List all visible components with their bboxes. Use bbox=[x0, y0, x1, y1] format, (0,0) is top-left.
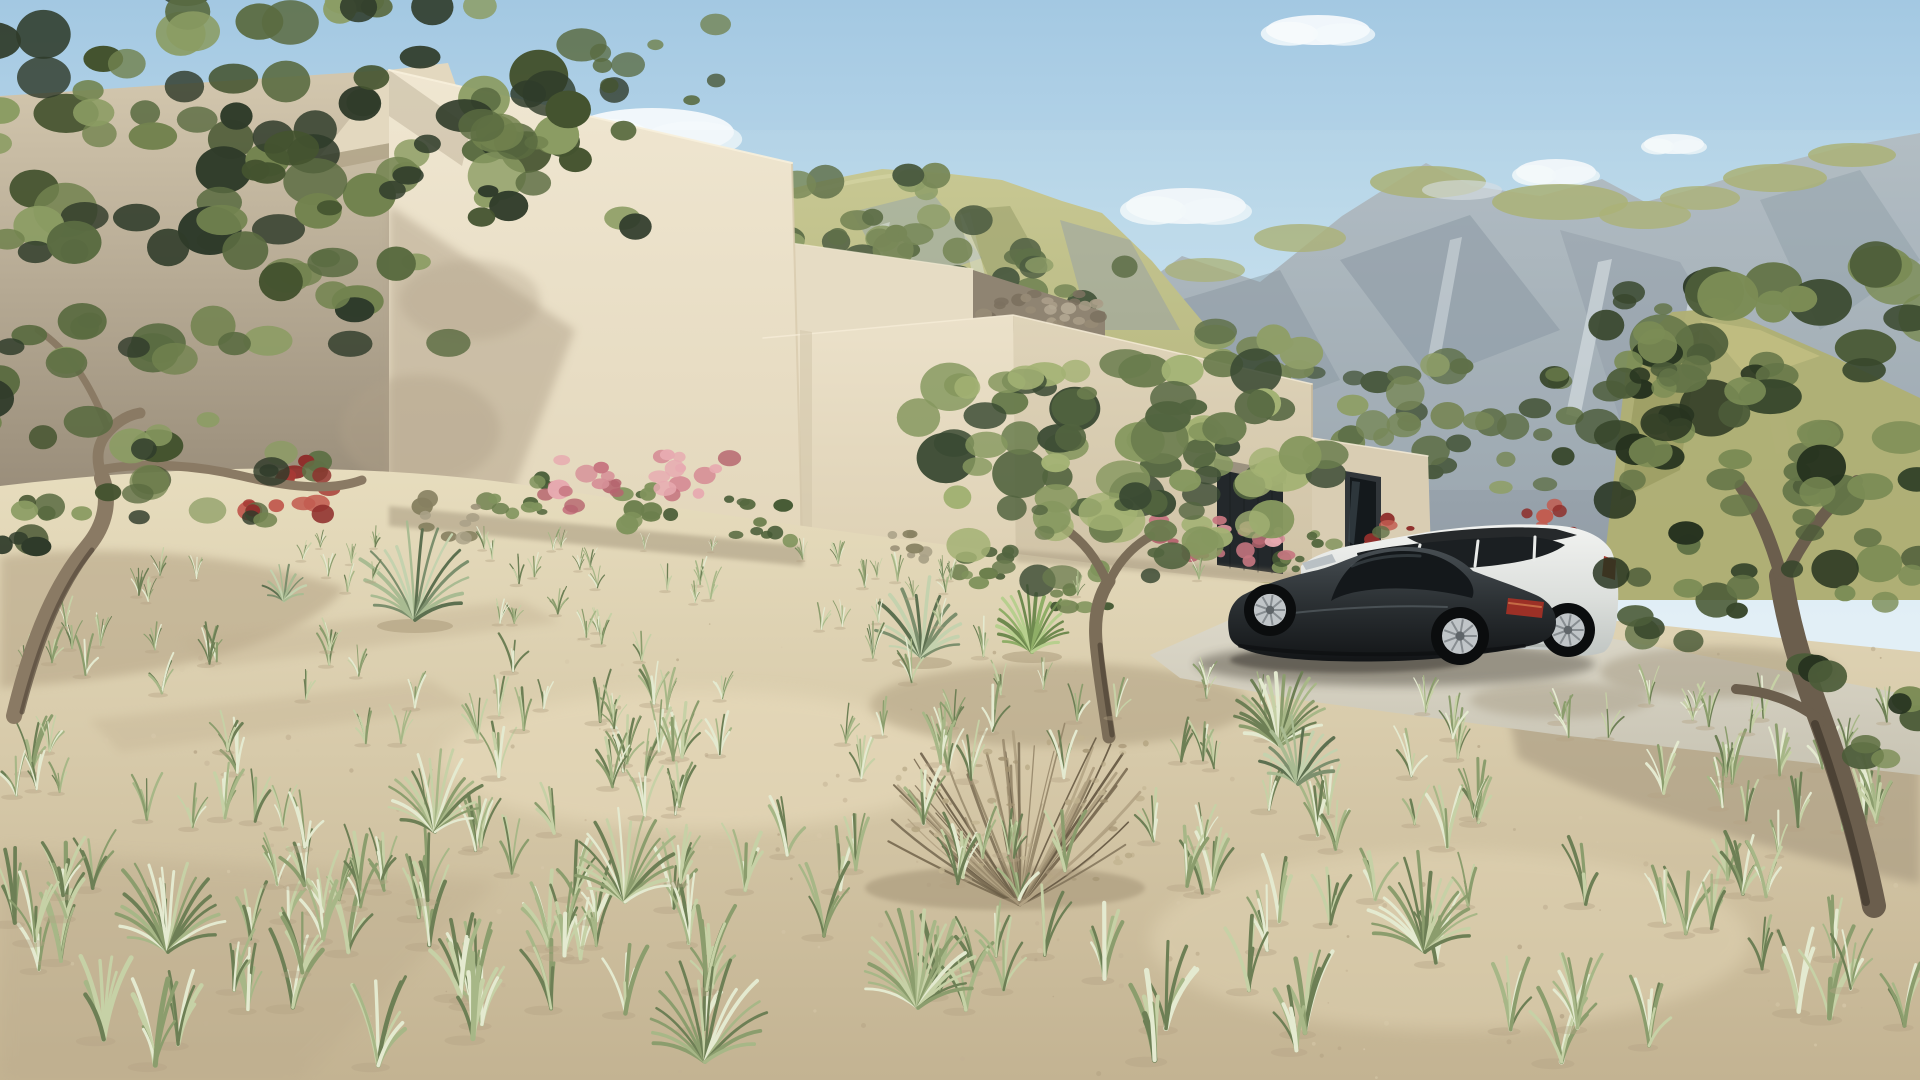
sports-car-rear-wheel bbox=[1431, 607, 1489, 665]
sports-car-front-wheel bbox=[1244, 584, 1296, 636]
scene-canvas bbox=[0, 0, 1920, 1080]
architectural-rendering-viewport bbox=[0, 0, 1920, 1080]
